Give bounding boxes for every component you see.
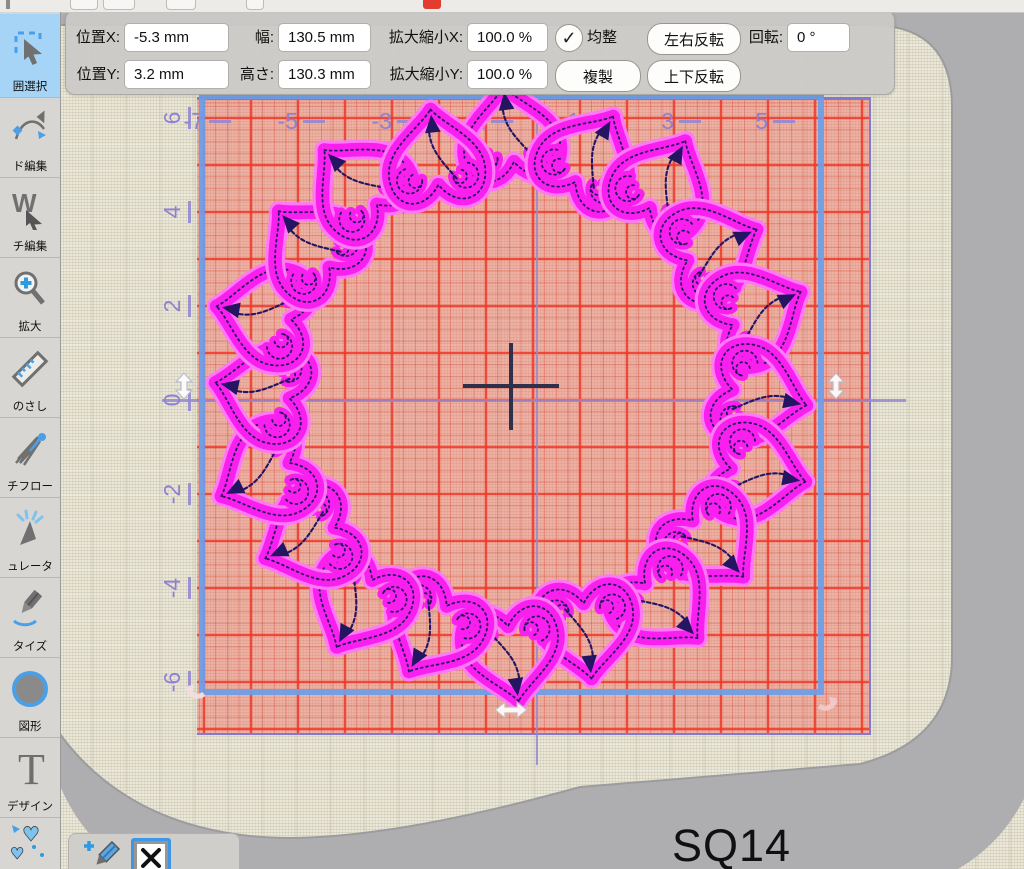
scale-x-field[interactable] (467, 23, 548, 52)
rotate-handle-bottom-right-icon[interactable] (813, 686, 839, 712)
tool-range-select[interactable]: 囲選択 (0, 14, 60, 98)
design-canvas[interactable]: -7-5-3-1135 6420-2-4-6 SQ14 (60, 12, 1024, 869)
check-icon: ✓ (561, 28, 576, 49)
uniform-scale-label: 均整 (587, 23, 623, 52)
height-field[interactable] (278, 60, 371, 89)
toolbar-button-remnant (166, 0, 196, 10)
text-T-icon: T (0, 737, 60, 800)
window-control-remnant (6, 0, 10, 9)
hearts-icon: ♥ ♥ (0, 817, 60, 867)
svg-text:W: W (12, 188, 37, 218)
record-icon-remnant (423, 0, 441, 9)
tool-shape[interactable]: 図形 (0, 657, 60, 738)
digitize-pen-icon (0, 577, 60, 640)
height-label: 高さ: (234, 60, 274, 89)
uniform-scale-checkbox[interactable]: ✓ (555, 24, 583, 52)
tool-ruler[interactable]: のさし (0, 337, 60, 418)
hoop-size-label: SQ14 (672, 820, 791, 869)
circle-shape-icon (0, 657, 60, 720)
width-label: 幅: (234, 23, 274, 52)
width-field[interactable] (278, 23, 371, 52)
embroidery-app-window: -7-5-3-1135 6420-2-4-6 SQ14 (0, 0, 1024, 869)
toolbar-button-remnant (246, 0, 264, 10)
svg-text:♥: ♥ (22, 822, 40, 846)
scale-y-field[interactable] (467, 60, 548, 89)
stitch-edit-icon: W (0, 177, 60, 240)
stitch-flow-icon (0, 417, 60, 480)
scale-y-label: 拡大縮小Y: (379, 60, 463, 89)
rotation-label: 回転: (745, 23, 783, 52)
tool-text-design[interactable]: T デザイン (0, 737, 60, 818)
tool-digitize[interactable]: タイズ (0, 577, 60, 658)
tool-zoom[interactable]: 拡大 (0, 257, 60, 338)
tool-simulator[interactable]: ュレータ (0, 497, 60, 578)
tool-stitch-flow[interactable]: チフロー (0, 417, 60, 498)
pos-y-field[interactable] (124, 60, 229, 89)
pos-x-label: 位置X: (72, 23, 120, 52)
duplicate-button[interactable]: 複製 (555, 60, 641, 92)
svg-text:T: T (18, 746, 45, 792)
simulator-icon (0, 497, 60, 560)
resize-handle-right-icon[interactable] (827, 372, 845, 400)
node-edit-icon (0, 97, 60, 160)
ruler-icon (0, 337, 60, 400)
toolbar-button-remnant (70, 0, 98, 10)
add-stitch-pen-icon[interactable] (81, 838, 123, 869)
rotation-field[interactable] (787, 23, 850, 52)
resize-handle-left-icon[interactable] (175, 372, 193, 400)
tool-node-edit[interactable]: ド編集 (0, 97, 60, 178)
tool-palette: 囲選択 ド編集 W チ編集 (0, 12, 61, 869)
rotate-handle-bottom-left-icon[interactable] (184, 674, 210, 700)
toolbar-button-remnant (103, 0, 135, 10)
embroidery-design[interactable] (60, 12, 1024, 869)
sewing-attribute-panel (68, 833, 240, 869)
svg-text:♥: ♥ (10, 844, 24, 863)
flip-vertical-button[interactable]: 上下反転 (647, 60, 741, 92)
pos-x-field[interactable] (124, 23, 229, 52)
property-toolbar: 位置X: 幅: 拡大縮小X: ✓ 均整 左右反転 回転: 位置Y: 高さ: 拡大… (65, 10, 895, 95)
zoom-plus-icon (0, 257, 60, 320)
center-crosshair (463, 384, 559, 388)
resize-handle-bottom-icon[interactable] (494, 700, 528, 720)
scale-x-label: 拡大縮小X: (379, 23, 463, 52)
x-icon (137, 844, 165, 869)
pos-y-label: 位置Y: (72, 60, 120, 89)
flip-horizontal-button[interactable]: 左右反転 (647, 23, 741, 55)
select-cursor-icon (0, 14, 60, 80)
not-sewn-x-button[interactable] (131, 838, 171, 869)
menu-strip-cropped (0, 0, 1024, 13)
tool-stitch-edit[interactable]: W チ編集 (0, 177, 60, 258)
tool-heart-design[interactable]: ♥ ♥ (0, 817, 60, 869)
